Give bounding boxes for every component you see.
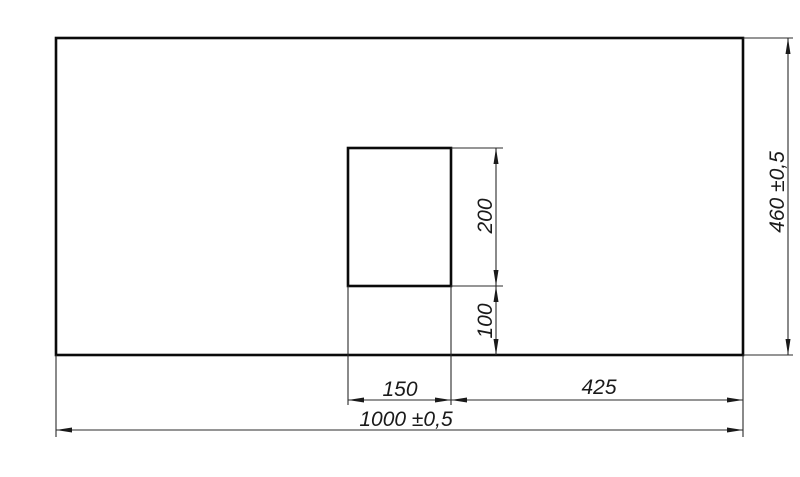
arrow-down-icon <box>494 339 499 355</box>
dimension-labels: 200 100 150 425 1000 ±0,5 460 ±0,5 <box>359 151 789 431</box>
arrow-up-icon <box>494 148 499 164</box>
arrow-right-icon <box>727 398 743 403</box>
arrow-left-icon <box>451 398 467 403</box>
dim-label-cutout-width: 150 <box>382 378 417 401</box>
arrow-up-icon <box>786 38 791 54</box>
arrow-down-icon <box>786 339 791 355</box>
dim-label-cutout-right-offset: 425 <box>581 376 616 399</box>
dim-label-total-width: 1000 ±0,5 <box>359 408 453 431</box>
dim-label-cutout-height: 200 <box>474 198 497 234</box>
panel-outline <box>56 38 743 355</box>
extension-lines <box>56 38 793 437</box>
technical-drawing-svg: 200 100 150 425 1000 ±0,5 460 ±0,5 <box>0 0 800 477</box>
dimension-lines <box>56 38 788 430</box>
arrow-left-icon <box>56 428 72 433</box>
arrow-right-icon <box>435 398 451 403</box>
dim-label-total-height: 460 ±0,5 <box>766 151 789 233</box>
drawing-canvas: 200 100 150 425 1000 ±0,5 460 ±0,5 <box>0 0 800 477</box>
arrowheads <box>56 38 791 433</box>
arrow-right-icon <box>727 428 743 433</box>
cutout-outline <box>348 148 451 286</box>
object-outlines <box>56 38 743 355</box>
dim-label-cutout-bottom-offset: 100 <box>474 303 497 338</box>
arrow-up-icon <box>494 286 499 302</box>
arrow-left-icon <box>348 398 364 403</box>
arrow-down-icon <box>494 270 499 286</box>
